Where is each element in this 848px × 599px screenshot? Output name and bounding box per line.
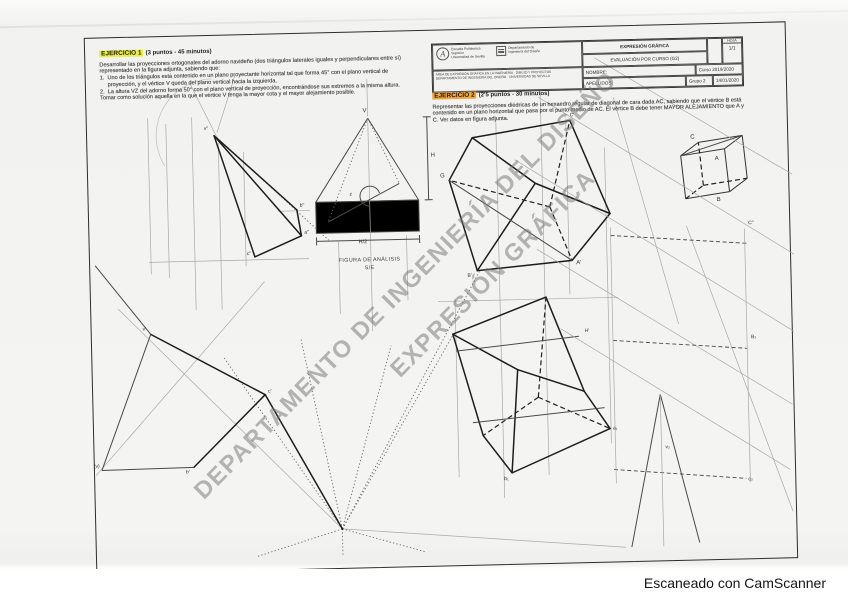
figure-label: c₂ xyxy=(748,476,753,482)
university-logo-unit: A Escuela Politécnica Superior Universid… xyxy=(436,46,491,60)
figure-label: G xyxy=(440,173,445,179)
exercise-1-title: EJERCICIO 1 xyxy=(99,49,144,57)
figure-label: (v) xyxy=(94,464,100,470)
department-name: Departamento de Ingeniería del Diseño xyxy=(508,45,548,54)
department-logo-icon xyxy=(496,46,506,56)
figure-label: b' xyxy=(186,469,190,475)
paper-content: v''b''a''c''VHH/2zv'c'b'(v)GC'A'B'H'a₁b₁… xyxy=(0,0,848,579)
figure-label: b'' xyxy=(300,203,305,209)
figure-label: B xyxy=(717,197,721,203)
logos-cell: A Escuela Politécnica Superior Universid… xyxy=(432,41,583,71)
camscanner-credit: Escaneado con CamScanner xyxy=(644,575,826,591)
figure-label: H/2 xyxy=(359,239,368,245)
figure-label: c' xyxy=(268,389,272,395)
spare-cell xyxy=(707,38,723,64)
figure-label: b₁ xyxy=(504,476,509,482)
figure-label: B₂ xyxy=(751,334,756,340)
figure-label: v₂ xyxy=(665,444,670,450)
figure-label: V xyxy=(362,108,366,114)
figure-label: C'' xyxy=(748,220,754,226)
figure-label: z xyxy=(349,192,352,198)
figure-label: a₁ xyxy=(613,425,618,431)
figure-label: c'' xyxy=(247,251,252,257)
figure-label: A' xyxy=(576,260,581,266)
exercise-1-block: EJERCICIO 1(3 puntos - 45 minutos) Desar… xyxy=(99,34,450,103)
figure-label: B' xyxy=(467,273,471,279)
university-logo-icon: A xyxy=(436,47,449,60)
exercise-2-points: (2'5 puntos - 30 minutos) xyxy=(479,91,550,99)
sheet-cell: HOJA 1/1 xyxy=(722,37,743,63)
university-name: Escuela Politécnica Superior Universidad… xyxy=(451,46,491,59)
figure-label: H xyxy=(431,153,435,159)
exercise-2-title: EJERCICIO 2 xyxy=(432,92,477,100)
figure-label: v' xyxy=(143,326,147,332)
sheet-value: 1/1 xyxy=(723,43,741,51)
exercise-2-block: EJERCICIO 2(2'5 puntos - 30 minutos) Rep… xyxy=(432,77,745,124)
figure-label: A xyxy=(715,156,719,162)
figure-label: H' xyxy=(585,328,590,334)
exercise-1-points: (3 puntos - 45 minutos) xyxy=(146,49,212,57)
department-logo-unit: Departamento de Ingeniería del Diseño xyxy=(496,45,548,56)
scanned-exam-sheet: v''b''a''c''VHH/2zv'c'b'(v)GC'A'B'H'a₁b₁… xyxy=(0,0,848,599)
exercise-1-statement: Desarrollar las proyecciones ortogonales… xyxy=(99,54,450,103)
figure-label: v'' xyxy=(204,126,209,132)
figure-label: a'' xyxy=(304,230,309,236)
figure-label: C xyxy=(690,134,694,140)
